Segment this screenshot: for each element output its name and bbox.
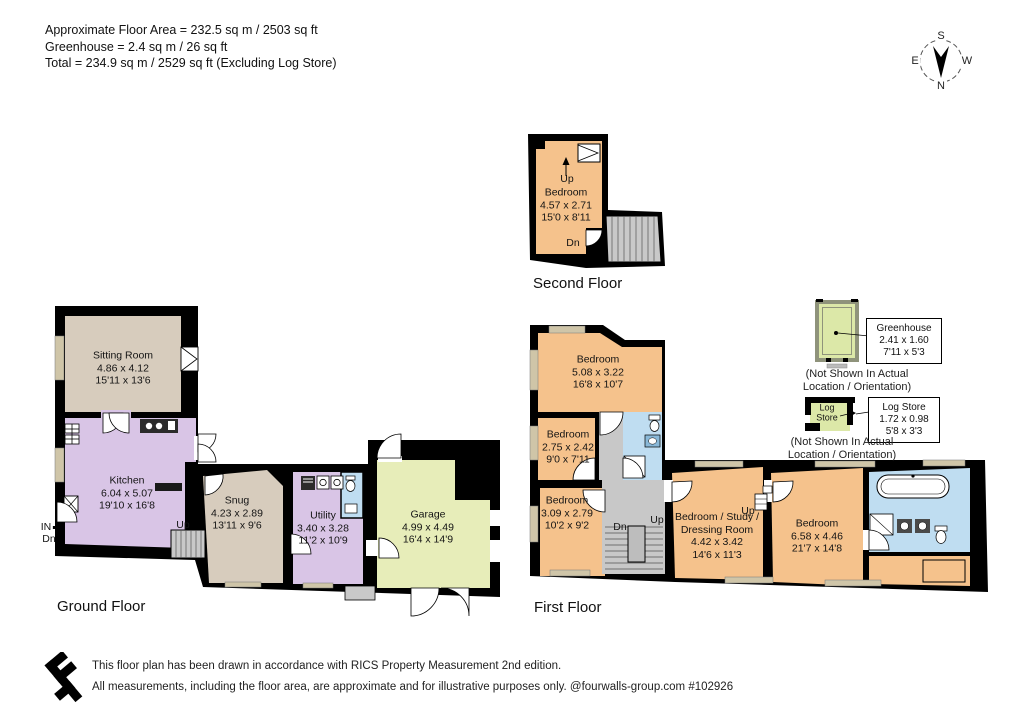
room-label-bedroom5: Bedroom 6.58 x 4.46 21'7 x 14'8 xyxy=(791,517,843,555)
room-dims-metric: 6.58 x 4.46 xyxy=(791,530,843,543)
compass-north: N xyxy=(935,80,947,92)
room-name: Bedroom xyxy=(791,517,843,530)
entry-arrow-icon xyxy=(52,523,63,532)
room-dims-metric: 4.99 x 4.49 xyxy=(402,521,454,534)
room-dims-imperial: 16'4 x 14'9 xyxy=(402,533,454,546)
outbuilding-name: Log Store xyxy=(875,402,933,414)
floorplan-canvas: Approximate Floor Area = 232.5 sq m / 25… xyxy=(0,0,1024,724)
fireplace-icon xyxy=(181,347,198,371)
area-line-total: Total = 234.9 sq m / 2529 sq ft (Excludi… xyxy=(45,55,337,72)
room-name: Bedroom xyxy=(572,353,624,366)
outbuilding-name: Greenhouse xyxy=(873,323,935,335)
greenhouse-plan xyxy=(812,298,872,372)
rooflight-icon xyxy=(578,144,600,162)
room-dims-metric: 2.75 x 2.42 xyxy=(542,441,594,454)
ground-dn-label: Dn xyxy=(42,533,55,545)
stairs xyxy=(606,216,661,262)
room-dims-metric: 4.42 x 3.42 xyxy=(664,536,770,549)
room-dims-metric: 3.09 x 2.79 xyxy=(541,507,593,520)
room-label-bedroom2: Bedroom 2.75 x 2.42 9'0 x 7'11 xyxy=(542,428,594,466)
first-floor-title: First Floor xyxy=(534,599,602,616)
ground-in-label: IN xyxy=(41,521,64,533)
utility-appliance-icon xyxy=(301,476,315,490)
first-dn-label: Dn xyxy=(613,521,626,533)
room-dims-metric: 4.23 x 2.89 xyxy=(211,507,263,520)
room-label-utility: Utility 3.40 x 3.28 11'2 x 10'9 xyxy=(297,509,349,547)
fourwalls-logo-icon xyxy=(42,652,92,710)
outbuilding-metric: 1.72 x 0.98 xyxy=(875,414,933,426)
second-up-label: Up xyxy=(560,173,573,185)
room-label-dressing-room: Bedroom / Study / Dressing Room 4.42 x 3… xyxy=(664,511,770,561)
room-dims-imperial: 19'10 x 16'8 xyxy=(99,499,155,512)
room-label-bedroom3: Bedroom 3.09 x 2.79 10'2 x 9'2 xyxy=(541,494,593,532)
toilet-icon xyxy=(649,415,660,432)
room-dims-imperial: 16'8 x 10'7 xyxy=(572,378,624,391)
kitchen-counter xyxy=(155,483,182,491)
second-dn-label: Dn xyxy=(566,237,579,249)
room-dims-imperial: 11'2 x 10'9 xyxy=(297,534,349,547)
room-name: Sitting Room xyxy=(93,349,153,362)
room-dims-imperial: 9'0 x 7'11 xyxy=(542,453,594,466)
room-label-garage: Garage 4.99 x 4.49 16'4 x 14'9 xyxy=(402,508,454,546)
room-dims-metric: 6.04 x 5.07 xyxy=(99,487,155,500)
ground-up-label: Up xyxy=(176,519,189,531)
outbuilding-imperial: 7'11 x 5'3 xyxy=(873,347,935,359)
disclaimer-line-2: All measurements, including the floor ar… xyxy=(92,681,733,693)
compass-south: S xyxy=(935,30,946,42)
room-dims-imperial: 15'11 x 13'6 xyxy=(93,374,153,387)
room-label-kitchen: Kitchen 6.04 x 5.07 19'10 x 16'8 xyxy=(99,474,155,512)
stove-icon xyxy=(140,419,178,433)
room-dims-imperial: 21'7 x 14'8 xyxy=(791,542,843,555)
second-floor-title: Second Floor xyxy=(533,275,622,292)
room-label-bedroom1: Bedroom 5.08 x 3.22 16'8 x 10'7 xyxy=(572,353,624,391)
room-name: Bedroom xyxy=(542,428,594,441)
stairs xyxy=(171,530,205,558)
ground-floor-title: Ground Floor xyxy=(57,598,145,615)
room-name: Utility xyxy=(297,509,349,522)
room-name: Bedroom xyxy=(540,186,592,199)
room-dims-imperial: 15'0 x 8'11 xyxy=(540,211,592,224)
area-line-total-floor: Approximate Floor Area = 232.5 sq m / 25… xyxy=(45,22,337,39)
compass-west: W xyxy=(960,55,974,67)
area-summary: Approximate Floor Area = 232.5 sq m / 25… xyxy=(45,22,337,72)
room-dims-metric: 3.40 x 3.28 xyxy=(297,522,349,535)
greenhouse-note: (Not Shown In Actual Location / Orientat… xyxy=(796,368,918,393)
room-dims-imperial: 10'2 x 9'2 xyxy=(541,519,593,532)
room-dims-metric: 4.57 x 2.71 xyxy=(540,199,592,212)
room-dims-metric: 5.08 x 3.22 xyxy=(572,366,624,379)
room-name: Garage xyxy=(402,508,454,521)
greenhouse-dimbox: Greenhouse 2.41 x 1.60 7'11 x 5'3 xyxy=(866,318,942,364)
log-store-note: (Not Shown In Actual Location / Orientat… xyxy=(781,436,903,461)
room-dims-imperial: 13'11 x 9'6 xyxy=(211,519,263,532)
room-dims-imperial: 14'6 x 11'3 xyxy=(664,549,770,562)
toilet-icon xyxy=(935,526,947,544)
room-name: Snug xyxy=(211,494,263,507)
room-label-sitting-room: Sitting Room 4.86 x 4.12 15'11 x 13'6 xyxy=(93,349,153,387)
compass-east: E xyxy=(909,55,920,67)
room-name: Bedroom xyxy=(541,494,593,507)
bathtub-icon xyxy=(877,474,949,498)
area-line-greenhouse: Greenhouse = 2.4 sq m / 26 sq ft xyxy=(45,39,337,56)
north-arrow-icon xyxy=(933,46,949,78)
sink-icon xyxy=(645,435,660,447)
log-store-interior-label: Log Store xyxy=(816,404,838,423)
disclaimer-line-1: This floor plan has been drawn in accord… xyxy=(92,660,561,672)
room-name: Kitchen xyxy=(99,474,155,487)
room-label-snug: Snug 4.23 x 2.89 13'11 x 9'6 xyxy=(211,494,263,532)
outbuilding-metric: 2.41 x 1.60 xyxy=(873,335,935,347)
porch xyxy=(345,586,375,600)
room-dims-metric: 4.86 x 4.12 xyxy=(93,362,153,375)
first-up-label-2: Up xyxy=(741,505,754,517)
first-up-label: Up xyxy=(650,514,663,526)
room-label-second-bedroom: Bedroom 4.57 x 2.71 15'0 x 8'11 xyxy=(540,186,592,224)
